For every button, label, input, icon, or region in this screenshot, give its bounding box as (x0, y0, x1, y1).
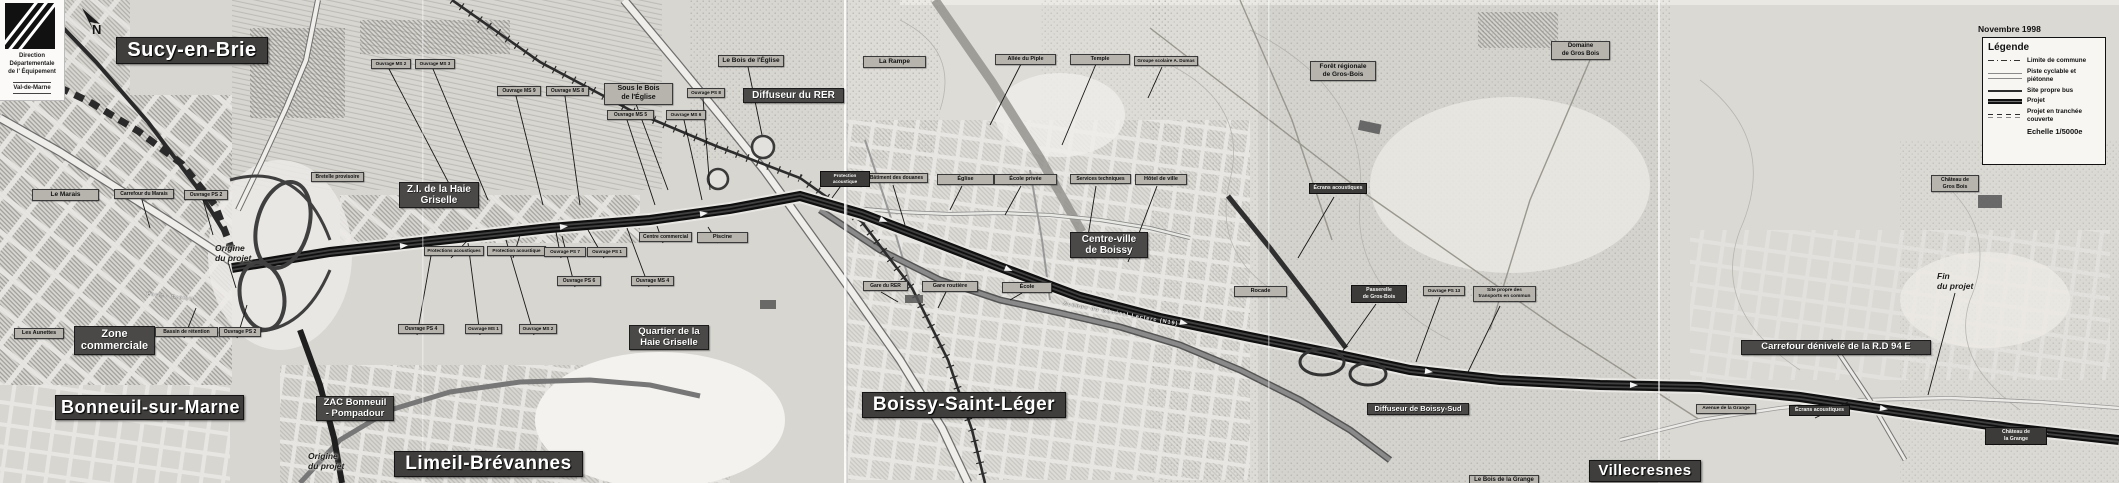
north-letter: N (92, 22, 101, 37)
legend-label-2: Site propre bus (2027, 87, 2073, 95)
protections-acoustiques-label: Protections acoustiques (424, 246, 484, 256)
ouvrage-ps2-sud-label: Ouvrage PS 2 (219, 327, 261, 337)
ouvrage-ms1-label: Ouvrage MS 1 (465, 324, 502, 334)
piscine-label: Piscine (697, 232, 748, 243)
carrefour-du-marais-label: Carrefour du Marais (114, 189, 174, 199)
protection-acoustique-dark-label: Protection acoustique (820, 171, 870, 187)
carrefour-denivele-rd94e-label: Carrefour dénivelé de la R.D 94 E (1741, 340, 1931, 355)
street-paris-creteil-label: Paris - Créteil (147, 291, 195, 303)
legend-symbol-none (1988, 131, 2022, 132)
ecrans-acoustiques-est-label: Écrans acoustiques (1789, 405, 1850, 416)
legend-label-4: Projet en tranchée couverte (2027, 108, 2082, 124)
zi-haie-griselle-label: Z.I. de la Haie Griselle (399, 182, 479, 208)
legend-symbol-dashes (1988, 114, 2022, 119)
date-note: Novembre 1998 (1978, 24, 2041, 34)
hotel-de-ville-label: Hôtel de ville (1135, 174, 1187, 185)
map-canvas: Sucy-en-BrieBonneuil-sur-MarneLimeil-Bré… (0, 0, 2119, 483)
chateau-de-la-grange-label: Château de la Grange (1985, 427, 2047, 445)
legend-title: Légende (1988, 42, 2100, 53)
groupe-scolaire-a-dumas-label: Groupe scolaire A. Dumas (1134, 56, 1198, 66)
legend-symbol-solid (1988, 90, 2022, 92)
temple-label: Temple (1070, 54, 1130, 65)
diffuseur-boissy-sud-label: Diffuseur de Boissy-Sud (1367, 403, 1469, 415)
ouvrage-ms3-haut-label: Ouvrage MS 3 (415, 59, 455, 69)
legend-item-3: Projet (1988, 97, 2100, 105)
les-aunettes-label: Les Aunettes (14, 328, 64, 339)
zac-bonneuil-pompadour-label: ZAC Bonneuil - Pompadour (316, 396, 394, 421)
ouvrage-ms5-label: Ouvrage MS 5 (607, 110, 654, 120)
sous-le-bois-de-l-eglise-label: Sous le Bois de l'Église (604, 83, 673, 105)
ouvrage-ps7-label: Ouvrage PS 7 (544, 247, 586, 257)
ecole-privee-label: École privée (994, 174, 1057, 185)
batiment-des-douanes-label: Bâtiment des douanes (865, 173, 928, 183)
commune-bonneuil-sur-marne-label: Bonneuil-sur-Marne (55, 395, 244, 420)
ouvrage-ps13-label: Ouvrage PS 13 (1423, 286, 1465, 296)
legend-symbol-thick (1988, 99, 2022, 104)
le-bois-de-l-eglise-label: Le Bois de l'Église (718, 55, 784, 67)
legend-label-5: Echelle 1/5000e (2027, 127, 2082, 136)
services-techniques-label: Services techniques (1070, 174, 1131, 184)
bassin-de-retention-label: Bassin de rétention (155, 327, 218, 337)
ouvrage-ps1-label: Ouvrage PS 1 (587, 247, 627, 257)
logo-line-4: Val-de-Marne (13, 82, 50, 94)
dde-logo-icon (5, 3, 55, 49)
logo-line-3: de l' Équipement (0, 68, 64, 76)
ouvrage-ms9-label: Ouvrage MS 9 (497, 86, 541, 96)
domaine-de-gros-bois-label: Domaine de Gros Bois (1551, 41, 1610, 60)
commune-villecresnes-label: Villecresnes (1589, 460, 1701, 482)
site-propre-transports-label: Site propre des transports en commun (1473, 286, 1536, 302)
le-marais-label: Le Marais (32, 189, 99, 201)
ouvrage-ps4-label: Ouvrage PS 4 (398, 324, 444, 334)
chateau-de-gros-bois-label: Château de Gros Bois (1931, 175, 1979, 192)
legend-symbol-dashdot (1988, 60, 2022, 61)
ecrans-acoustiques-label: Écrans acoustiques (1309, 183, 1367, 194)
diffuseur-du-rer-label: Diffuseur du RER (743, 88, 844, 103)
rocade-label: Rocade (1234, 286, 1287, 297)
centre-ville-boissy-label: Centre-ville de Boissy (1070, 232, 1148, 258)
gare-routiere-label: Gare routière (922, 281, 978, 292)
logo-line-2: Départementale (0, 60, 64, 68)
protection-acoustique-n5-label: Protection acoustique (487, 246, 546, 256)
legend-symbol-double (1988, 73, 2022, 79)
commune-sucy-en-brie-label: Sucy-en-Brie (116, 37, 268, 64)
dde-logo-block: Direction Départementale de l' Équipemen… (0, 0, 65, 101)
legend-items: Limite de communePiste cyclable et piéto… (1988, 57, 2100, 136)
quartier-haie-griselle-label: Quartier de la Haie Griselle (629, 325, 709, 350)
origine-du-projet-nord-label: Origine du projet (215, 243, 251, 263)
gare-du-rer-label: Gare du RER (863, 281, 908, 291)
passerelle-de-gros-bois-label: Passerelle de Gros-Bois (1351, 285, 1407, 303)
north-arrow: N (78, 6, 118, 46)
commune-limeil-brevannes-label: Limeil-Brévannes (394, 451, 583, 477)
commune-boissy-saint-leger-label: Boissy-Saint-Léger (862, 392, 1066, 418)
ouvrage-ps8-label: Ouvrage PS 8 (687, 88, 725, 98)
legend-item-1: Piste cyclable et piétonne (1988, 68, 2100, 84)
zone-commerciale-label: Zone commerciale (74, 326, 155, 355)
centre-commercial-label: Centre commercial (639, 232, 692, 242)
legend-box: Légende Limite de communePiste cyclable … (1982, 37, 2106, 165)
allee-du-piple-label: Allée du Piple (995, 54, 1056, 65)
legend-label-3: Projet (2027, 97, 2045, 105)
bretelle-provisoire-label: Bretelle provisoire (311, 172, 364, 182)
la-rampe-label: La Rampe (863, 56, 926, 68)
logo-line-1: Direction (0, 52, 64, 60)
fin-du-projet-label: Fin du projet (1937, 271, 1973, 291)
legend-item-0: Limite de commune (1988, 57, 2100, 65)
ouvrage-ms8-label: Ouvrage MS 8 (546, 86, 589, 96)
ouvrage-ms2-label: Ouvrage MS 2 (519, 324, 557, 334)
origine-du-projet-sud-label: Origine du projet (308, 451, 344, 471)
le-bois-de-la-grange-label: Le Bois de la Grange (1469, 475, 1539, 483)
legend-label-0: Limite de commune (2027, 57, 2086, 65)
legend-item-2: Site propre bus (1988, 87, 2100, 95)
ouvrage-ms4-label: Ouvrage MS 4 (631, 276, 674, 286)
ouvrage-ps2-nord-label: Ouvrage PS 2 (184, 190, 228, 200)
ouvrage-ms6-label: Ouvrage MS 6 (666, 110, 706, 120)
street-avenue-general-leclerc-label: Avenue du Général Leclerc (N19) (1062, 301, 1178, 327)
legend-label-1: Piste cyclable et piétonne (2027, 68, 2076, 84)
foret-regionale-de-gros-bois-label: Forêt régionale de Gros-Bois (1310, 61, 1376, 81)
labels-layer: Sucy-en-BrieBonneuil-sur-MarneLimeil-Bré… (0, 0, 2119, 483)
ecole-label: École (1002, 282, 1052, 293)
legend-item-5: Echelle 1/5000e (1988, 127, 2100, 136)
ouvrage-ps6-label: Ouvrage PS 6 (557, 276, 601, 286)
legend-item-4: Projet en tranchée couverte (1988, 108, 2100, 124)
avenue-de-la-grange-label: Avenue de la Grange (1696, 404, 1756, 414)
eglise-label: Église (937, 174, 994, 185)
ouvrage-ms2-haut-label: Ouvrage MS 2 (371, 59, 411, 69)
